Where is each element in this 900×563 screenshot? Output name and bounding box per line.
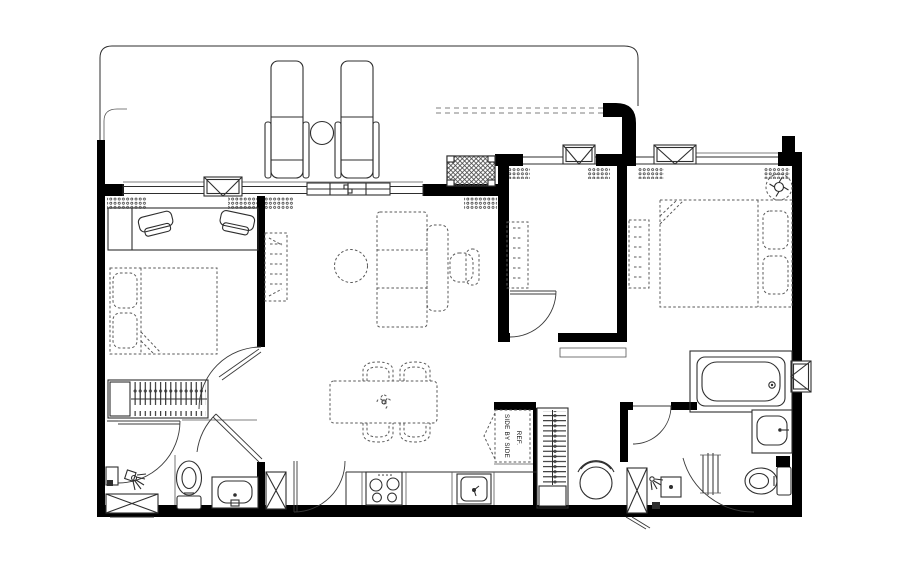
balcony xyxy=(100,46,638,178)
desk-icon xyxy=(108,208,258,250)
window-envelope-bathroom-icon xyxy=(791,361,811,392)
desk-chair-icon xyxy=(218,210,255,237)
vanity-sink-icon xyxy=(752,410,792,453)
refrigerator-label-line1: REF. xyxy=(515,431,522,446)
door-master-bathroom xyxy=(633,406,671,444)
master-bedroom xyxy=(629,174,792,307)
wall-middle-master xyxy=(617,160,627,340)
window-slider-living-icon xyxy=(307,183,390,195)
round-side-table-icon xyxy=(311,122,334,145)
armchair-icon xyxy=(450,249,479,285)
middle-room-wardrobe-icon xyxy=(507,222,528,288)
hallway xyxy=(537,408,647,513)
bed-icon xyxy=(110,268,217,354)
pillow-icon xyxy=(113,273,137,308)
table-centerpiece-icon xyxy=(377,395,391,409)
pillow-icon xyxy=(113,313,137,348)
shaft-icon xyxy=(266,472,286,509)
door-corridor-diagonal xyxy=(197,414,262,462)
dining-chair-icon xyxy=(363,362,393,381)
bathtub-icon xyxy=(690,351,792,412)
shower-head-icon xyxy=(106,467,146,490)
interior-walls xyxy=(107,160,697,508)
ac-unit-icon xyxy=(447,156,495,186)
balcony-railing xyxy=(100,46,638,140)
washer-ledge-icon xyxy=(106,494,158,517)
floor-drain-icon xyxy=(652,502,660,509)
wall-living-middle xyxy=(498,160,509,335)
wall-left xyxy=(97,140,105,517)
refrigerator-icon: SIDE BY SIDE REF. xyxy=(484,410,530,462)
dining-table-icon xyxy=(330,381,437,423)
tv-unit-icon xyxy=(265,233,287,301)
balcony-inner-railing xyxy=(104,109,127,140)
kitchen: SIDE BY SIDE REF. xyxy=(346,410,537,505)
floor-plan-canvas: SIDE BY SIDE REF. xyxy=(0,0,900,563)
sun-lounger-icon xyxy=(265,61,309,178)
door-middle-room xyxy=(510,291,556,337)
refrigerator-label-line2: SIDE BY SIDE xyxy=(503,414,510,458)
coffee-table-icon xyxy=(335,250,368,283)
vanity-sink-icon xyxy=(212,477,258,508)
dining-chair-icon xyxy=(400,423,430,442)
master-bathroom xyxy=(650,351,792,509)
threshold xyxy=(560,348,626,357)
shower-basin-icon xyxy=(650,477,681,509)
window-envelope-master-icon xyxy=(654,145,696,164)
stool-icon xyxy=(578,461,614,499)
sofa-icon xyxy=(377,212,448,327)
entry-flap xyxy=(626,517,650,529)
door-kitchen xyxy=(294,461,345,512)
dining-area xyxy=(330,362,437,442)
door-bathroom-left xyxy=(118,421,180,483)
wall-right xyxy=(792,152,802,517)
wall-bottom xyxy=(97,505,802,517)
cooktop-icon xyxy=(366,472,402,505)
toilet-icon xyxy=(177,461,202,509)
living-room xyxy=(265,212,479,327)
bed-icon xyxy=(660,200,792,307)
pillow-icon xyxy=(763,256,788,294)
overhang-dashed-line xyxy=(436,108,603,113)
toilet-icon xyxy=(745,467,791,495)
hall-closet-icon xyxy=(537,408,568,508)
window-envelope-bedroom-left-icon xyxy=(204,177,242,196)
dining-chair-icon xyxy=(363,423,393,442)
dresser-icon xyxy=(629,220,649,288)
bedroom-left xyxy=(108,208,258,418)
shaft-icon xyxy=(627,468,647,513)
floor-plan-drawing: SIDE BY SIDE REF. xyxy=(0,0,900,563)
window-envelope-middle-icon xyxy=(563,145,595,164)
towel-rail-icon xyxy=(700,453,721,495)
wall-niche xyxy=(776,456,790,467)
kitchen-sink-icon xyxy=(457,474,491,504)
wardrobe-icon xyxy=(108,380,208,418)
sun-lounger-icon xyxy=(335,61,379,178)
desk-chair-icon xyxy=(137,210,175,238)
pillow-icon xyxy=(763,211,788,249)
wall-corridor xyxy=(620,402,628,462)
dining-chair-icon xyxy=(400,362,430,381)
wall-fridge-top xyxy=(494,402,536,410)
